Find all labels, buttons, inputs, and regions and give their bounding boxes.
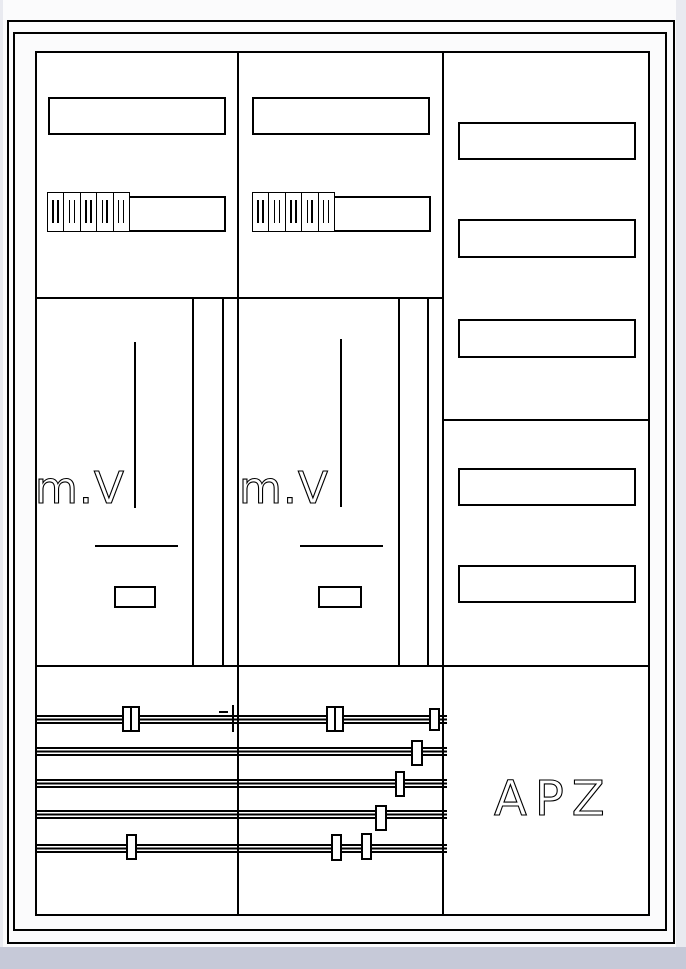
blank-plate-right-3 bbox=[458, 319, 636, 358]
blank-plate-right-1 bbox=[458, 122, 636, 160]
meter-axis-line-field1 bbox=[134, 342, 136, 508]
apz-label-text: APZ bbox=[494, 771, 613, 827]
breaker-module bbox=[302, 193, 318, 231]
busbar-2 bbox=[35, 747, 447, 756]
busbar-clamp bbox=[361, 833, 372, 860]
busbar-1 bbox=[35, 715, 447, 724]
busbar-clamp-double bbox=[122, 706, 140, 732]
label-plate-field1 bbox=[48, 97, 226, 135]
busbar-clamp bbox=[395, 771, 405, 797]
window-left-edge bbox=[0, 0, 3, 947]
blank-plate-right-4 bbox=[458, 468, 636, 506]
meter-base-line-field2 bbox=[300, 545, 383, 547]
wire-duct-line bbox=[427, 298, 429, 666]
meter-base-line-field1 bbox=[95, 545, 178, 547]
wire-duct-line bbox=[192, 298, 194, 666]
breaker-block-field1 bbox=[47, 192, 130, 232]
breaker-module bbox=[81, 193, 97, 231]
blank-plate-right-5 bbox=[458, 565, 636, 603]
busbar-5 bbox=[35, 844, 447, 853]
busbar-tap-dash bbox=[219, 711, 228, 713]
band-divider-bottom bbox=[35, 665, 650, 667]
breaker-module bbox=[64, 193, 80, 231]
cad-viewer-canvas: m.V m.V APZ bbox=[0, 0, 686, 969]
breaker-module bbox=[114, 193, 129, 231]
busbar-clamp bbox=[375, 805, 387, 831]
breaker-module bbox=[48, 193, 64, 231]
breaker-module bbox=[97, 193, 113, 231]
breaker-block-field2 bbox=[252, 192, 335, 232]
busbar-clamp-double bbox=[326, 706, 344, 732]
busbar-clamp bbox=[429, 708, 440, 731]
blank-plate-right-2 bbox=[458, 219, 636, 258]
busbar-tap-line bbox=[232, 705, 234, 732]
meter-label-text: m.V bbox=[35, 463, 125, 514]
wire-duct-line bbox=[222, 298, 224, 666]
busbar-3 bbox=[35, 779, 447, 788]
meter-terminal-box-field1 bbox=[114, 586, 156, 608]
wire-duct-line bbox=[398, 298, 400, 666]
breaker-module bbox=[269, 193, 285, 231]
label-plate-field2 bbox=[252, 97, 430, 135]
apz-field-label: APZ bbox=[492, 766, 612, 820]
busbar-clamp bbox=[411, 740, 423, 766]
breaker-module bbox=[253, 193, 269, 231]
meter-axis-line-field2 bbox=[340, 339, 342, 507]
meter-label-field1: m.V bbox=[33, 456, 133, 508]
meter-label-field2: m.V bbox=[237, 456, 337, 508]
breaker-module bbox=[319, 193, 334, 231]
window-right-edge bbox=[676, 0, 686, 947]
busbar-clamp bbox=[331, 834, 342, 861]
busbar-clamp bbox=[126, 834, 137, 860]
meter-terminal-box-field2 bbox=[318, 586, 362, 608]
right-column-divider bbox=[443, 419, 650, 421]
breaker-module bbox=[286, 193, 302, 231]
band-divider-top bbox=[35, 297, 444, 299]
meter-label-text: m.V bbox=[239, 463, 329, 514]
window-bottom-edge bbox=[0, 947, 686, 969]
